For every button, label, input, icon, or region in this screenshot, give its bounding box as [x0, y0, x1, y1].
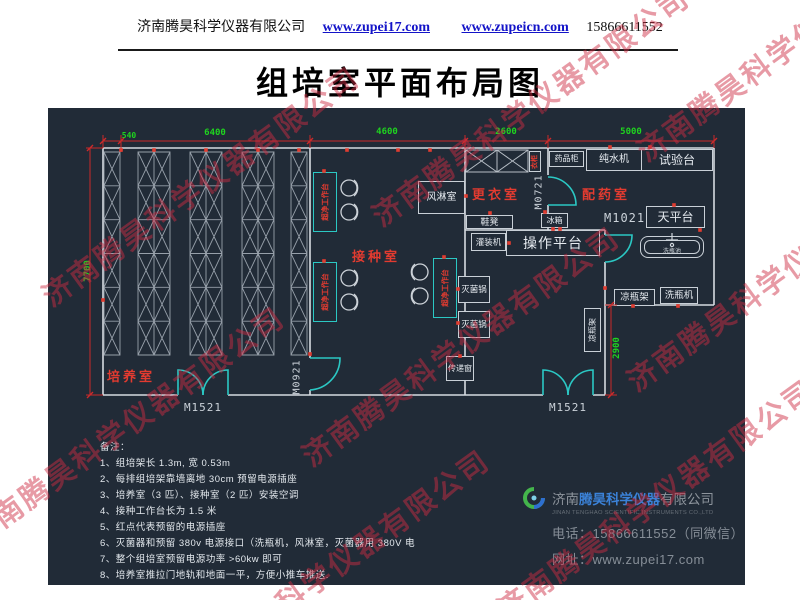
bottle-wash-sink: 洗瓶池 — [640, 236, 704, 258]
note-line: 3、培养室（3 匹）、接种室（2 匹）安装空调 — [100, 488, 415, 504]
door-label-m1021: M1021 — [604, 211, 645, 225]
page: 济南腾昊科学仪器有限公司 www.zupei17.com www.zupeicn… — [0, 0, 800, 600]
header-company: 济南腾昊科学仪器有限公司 — [137, 20, 305, 35]
page-title: 组培室平面布局图 — [0, 58, 800, 104]
dim-2600: 2600 — [495, 127, 517, 137]
note-line: 2、每排组培架靠墙离地 30cm 预留电源插座 — [100, 472, 415, 488]
air-shower-room: 风淋室 — [418, 181, 465, 214]
bottle-cooling-rack: 凉瓶架 — [614, 289, 655, 306]
clean-bench-3: 超净工作台 — [433, 258, 457, 318]
note-line: 6、灭菌器和预留 380v 电源接口（洗瓶机，风淋室，灭菌器用 380V 电 — [100, 536, 415, 552]
notes-title: 备注： — [100, 440, 415, 456]
room-label-inoculation: 接种室 — [352, 246, 400, 265]
header-divider — [118, 49, 678, 51]
footer-phone: 电话：15866611552（同微信） — [552, 523, 744, 542]
pure-water-machine: 纯水机 — [587, 155, 641, 165]
dim-540: 540 — [122, 131, 136, 140]
door-label-m1521-left: M1521 — [184, 401, 222, 414]
door-label-m1521-right: M1521 — [549, 401, 587, 414]
operation-platform: 操作平台 — [506, 230, 600, 256]
filling-machine: 灌装机 — [471, 233, 506, 251]
dim-7700: 7700 — [83, 260, 93, 282]
refrigerator: 冰箱 — [541, 213, 568, 228]
clean-bench-2: 超净工作台 — [313, 262, 337, 322]
sterilizer-2: 灭菌锅 — [458, 311, 490, 338]
note-line: 8、培养室推拉门地轨和地面一平，方便小推车推送. — [100, 568, 415, 584]
dim-4600: 4600 — [376, 127, 398, 137]
shoe-bench: 鞋凳 — [466, 215, 513, 229]
note-line: 1、组培架长 1.3m, 宽 0.53m — [100, 456, 415, 472]
room-label-changing: 更衣室 — [472, 184, 520, 203]
room-label-dispensing: 配药室 — [582, 184, 630, 203]
door-label-m0921: M0921 — [292, 359, 303, 394]
sterilizer-1: 灭菌锅 — [458, 276, 490, 303]
footer-site: 网址：www.zupei17.com — [552, 549, 744, 568]
brand-logo-icon — [522, 486, 546, 510]
bench-top-row: 纯水机 试验台 — [586, 149, 713, 171]
medicine-cabinet: 药品柜 — [549, 151, 584, 167]
balance-table: 天平台 — [646, 206, 705, 228]
clean-bench-1: 超净工作台 — [313, 172, 337, 232]
bottle-cooling-rack-vertical: 凉瓶架 — [584, 308, 601, 352]
header-link-zupeicn[interactable]: www.zupeicn.com — [462, 20, 569, 35]
dim-5000: 5000 — [620, 127, 642, 137]
note-line: 5、红点代表预留的电源插座 — [100, 520, 415, 536]
dim-2900: 2900 — [612, 337, 622, 359]
brand-name: 济南腾昊科学仪器有限公司 — [552, 488, 744, 508]
header: 济南腾昊科学仪器有限公司 www.zupei17.com www.zupeicn… — [0, 16, 800, 36]
notes-block: 备注： 1、组培架长 1.3m, 宽 0.53m 2、每排组培架靠墙离地 30c… — [100, 440, 415, 584]
dim-6400: 6400 — [204, 128, 226, 138]
wardrobe: 衣柜 — [529, 151, 541, 172]
note-line: 7、整个组培室预留电源功率 >60kw 即可 — [100, 552, 415, 568]
test-bench: 试验台 — [641, 150, 712, 170]
room-label-culture: 培养室 — [107, 366, 155, 385]
transfer-window: 传递窗 — [446, 356, 474, 381]
footer-brand: 济南腾昊科学仪器有限公司 JINAN TENGHAO SCIENTIFIC IN… — [552, 488, 744, 568]
note-line: 4、接种工作台长为 1.5 米 — [100, 504, 415, 520]
header-link-zupei17[interactable]: www.zupei17.com — [323, 20, 430, 35]
bottle-washer: 洗瓶机 — [660, 287, 698, 304]
brand-name-en: JINAN TENGHAO SCIENTIFIC INSTRUMENTS CO.… — [552, 510, 744, 516]
door-label-m0721: M0721 — [534, 174, 545, 209]
header-phone: 15866611552 — [586, 20, 662, 35]
